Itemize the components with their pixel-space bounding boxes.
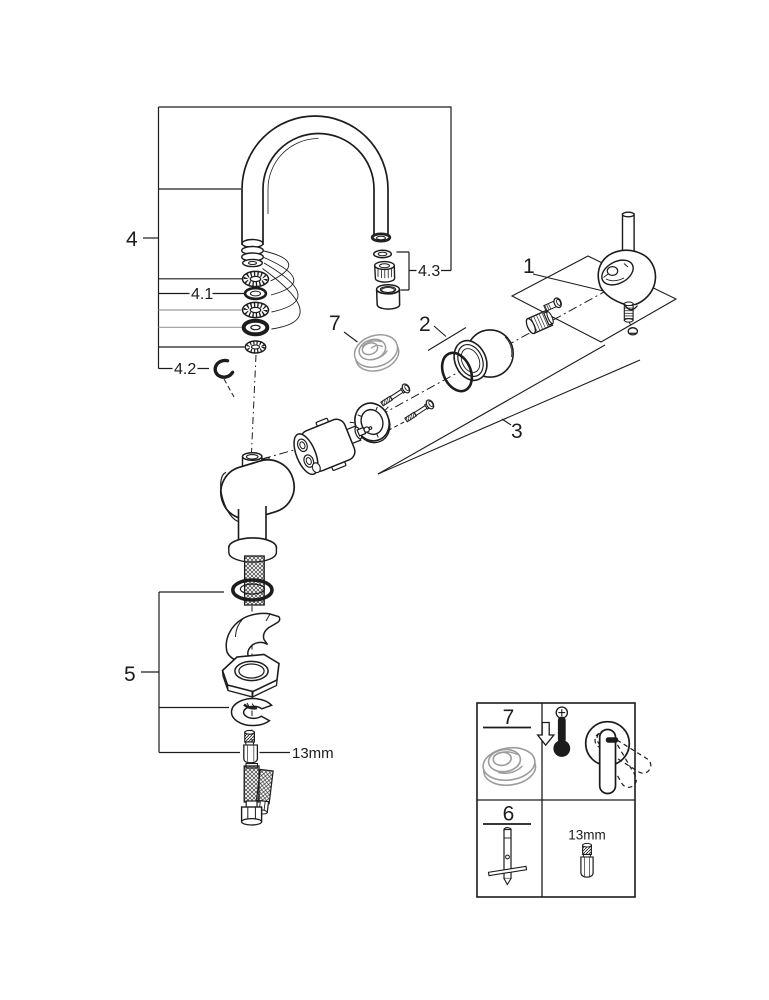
aerator-assembly bbox=[374, 250, 400, 309]
callout-3-label: 3 bbox=[511, 420, 523, 443]
mounting-nut bbox=[223, 655, 280, 698]
fixing-screw-2 bbox=[403, 399, 435, 424]
threaded-stud bbox=[244, 730, 258, 762]
bearing-ring-middle bbox=[243, 302, 269, 317]
callout-4-1-label: 4.1 bbox=[191, 286, 213, 303]
aerator-housing bbox=[377, 285, 400, 309]
center-axis-lines bbox=[224, 292, 604, 764]
callout-5-label: 5 bbox=[124, 663, 136, 686]
exploded-parts-diagram-page: 4 4.1 4.2 4.3 bbox=[0, 0, 769, 1000]
mounting-hardware bbox=[223, 613, 280, 825]
part-3-group-line-a bbox=[378, 360, 640, 474]
snap-ring-4-2 bbox=[213, 358, 235, 379]
body-column bbox=[239, 508, 267, 542]
seal-ring-stack bbox=[213, 271, 268, 379]
wrench-size-label: 13mm bbox=[292, 745, 334, 762]
legend-7-label: 7 bbox=[503, 706, 515, 729]
fixing-screw-1 bbox=[379, 383, 411, 408]
callout-7-label: 7 bbox=[329, 312, 341, 335]
aerator-washer bbox=[374, 250, 392, 257]
spout bbox=[242, 116, 390, 267]
faucet-body bbox=[214, 452, 301, 605]
callout-4-label: 4 bbox=[126, 228, 138, 251]
callout-4-bracket bbox=[143, 107, 451, 369]
spout-tube bbox=[242, 116, 388, 244]
exploded-diagram: 4 4.1 4.2 4.3 bbox=[0, 0, 769, 1000]
aerator-insert bbox=[375, 262, 395, 283]
o-ring-4-1 bbox=[245, 288, 266, 299]
bearing-ring-small bbox=[245, 341, 265, 353]
temperature-limiter-ring bbox=[350, 329, 403, 376]
knurled-nut bbox=[525, 309, 556, 334]
supply-hoses bbox=[242, 764, 274, 826]
callout-1-label: 1 bbox=[523, 255, 535, 278]
legend-box: 7 6 bbox=[477, 703, 654, 897]
legend-6-label: 6 bbox=[503, 803, 515, 826]
threaded-stud-icon bbox=[581, 843, 593, 877]
spout-seal-leader-curves bbox=[263, 251, 301, 329]
o-ring-dark bbox=[244, 321, 268, 335]
callout-4-3-label: 4.3 bbox=[418, 263, 440, 280]
handle-plug bbox=[628, 328, 637, 335]
dome-cap bbox=[448, 330, 513, 386]
callout-2-label: 2 bbox=[419, 313, 431, 336]
bearing-ring-top bbox=[243, 271, 269, 286]
legend-wrench-size-label: 13mm bbox=[568, 828, 606, 843]
spout-inlet-rings bbox=[242, 247, 264, 267]
handle-lever bbox=[598, 212, 656, 335]
callout-4-2-label: 4.2 bbox=[174, 361, 196, 378]
